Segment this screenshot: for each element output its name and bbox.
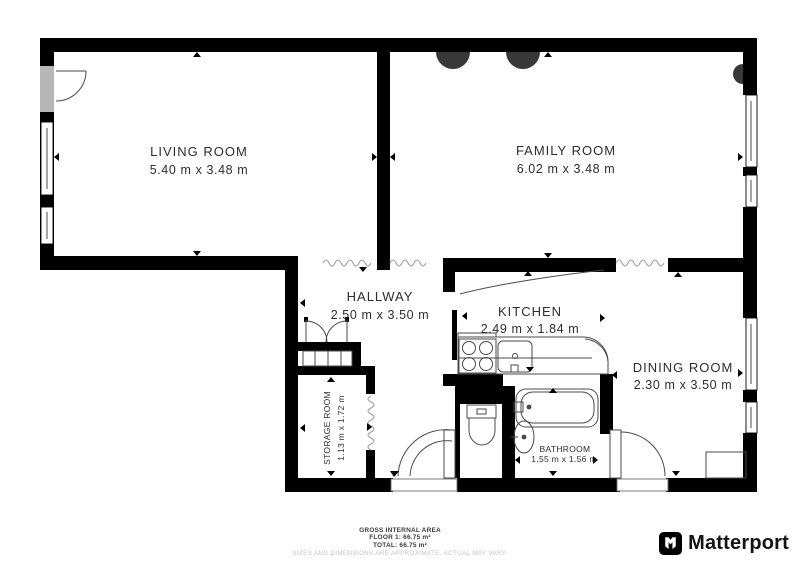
living-room-door <box>40 66 86 112</box>
floorplan-drawing: LIVING ROOM 5.40 m x 3.48 m FAMILY ROOM … <box>0 0 800 520</box>
bathroom-label: BATHROOM <box>540 444 591 454</box>
matterport-branding: Matterport <box>659 532 789 555</box>
storage-room-label: STORAGE ROOM <box>322 391 332 465</box>
kitchen-label: KITCHEN <box>498 304 562 319</box>
kitchen-dims: 2.49 m x 1.84 m <box>481 322 580 336</box>
entrance-door <box>390 430 457 491</box>
living-room-window-top <box>41 122 53 195</box>
living-room-label: LIVING ROOM <box>150 144 248 159</box>
toilet <box>467 405 496 445</box>
dining-cabinet <box>706 452 746 478</box>
bath-tap <box>514 402 531 412</box>
bathroom-dims: 1.55 m x 1.56 m <box>531 454 596 464</box>
living-room-dims: 5.40 m x 3.48 m <box>150 163 249 177</box>
walls <box>40 38 757 492</box>
hallway-label: HALLWAY <box>347 289 414 304</box>
hallway-dims: 2.50 m x 3.50 m <box>331 308 430 322</box>
wardrobe-shelf <box>303 351 352 366</box>
floorplan-page: LIVING ROOM 5.40 m x 3.48 m FAMILY ROOM … <box>0 0 800 566</box>
opening-family-dining <box>616 260 664 266</box>
dining-room-window-top <box>746 318 757 390</box>
storage-room-dims: 1.13 m x 1.72 m <box>336 395 346 460</box>
matterport-logo-text: Matterport <box>688 532 789 555</box>
opening-family-hallway <box>390 260 426 266</box>
living-room-window-bottom <box>41 207 53 244</box>
opening-living-hallway <box>323 260 371 266</box>
family-room-dims: 6.02 m x 3.48 m <box>517 162 616 176</box>
dining-room-dims: 2.30 m x 3.50 m <box>634 378 733 392</box>
room-labels: LIVING ROOM 5.40 m x 3.48 m FAMILY ROOM … <box>150 143 734 465</box>
kitchen-counter-end-arc <box>585 339 608 366</box>
dining-room-door <box>610 430 668 491</box>
kitchen-door-arc <box>460 270 604 294</box>
dark-objects <box>436 52 743 84</box>
family-room-label: FAMILY ROOM <box>516 143 616 158</box>
family-room-window-top <box>746 95 757 167</box>
family-room-window-bottom <box>746 175 757 207</box>
stove <box>459 339 496 373</box>
matterport-logo-icon <box>659 532 682 555</box>
opening-storage-hall <box>368 396 374 450</box>
dining-room-label: DINING ROOM <box>633 360 734 375</box>
dining-room-window-bottom <box>746 402 757 433</box>
